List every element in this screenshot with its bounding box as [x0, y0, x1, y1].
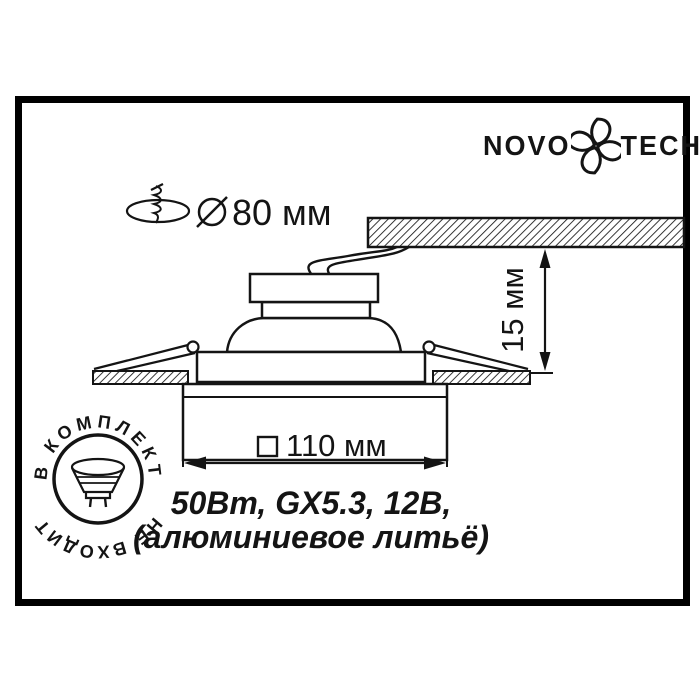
pivot-right [424, 342, 435, 353]
spec-line-1: 50Вт, GX5.3, 12В, [111, 486, 511, 520]
lamp-holder-block [250, 274, 378, 302]
page-canvas: { "page": { "background": "#ffffff", "in… [0, 0, 700, 700]
trim-width-label: 110 мм [286, 428, 387, 463]
cutout-diameter-label: 80 мм [232, 192, 332, 233]
spring-clip-left-lower [117, 353, 195, 371]
pivot-left [188, 342, 199, 353]
power-wires [308, 247, 409, 275]
fixture-body [94, 274, 528, 382]
ceiling-strip-right [433, 371, 530, 384]
ceiling-strip-left [93, 371, 188, 384]
spec-text: 50Вт, GX5.3, 12В, (алюминиевое литьё) [111, 486, 511, 554]
protrusion-height-label: 15 мм [495, 267, 530, 353]
screw-in-hole-icon [127, 184, 189, 223]
fixture-housing-dome [227, 318, 401, 352]
ceiling-slab [368, 218, 684, 247]
trim-ring [197, 352, 425, 382]
screw-thread [154, 186, 161, 223]
arrow-down [540, 352, 551, 371]
diameter-symbol-icon [197, 197, 227, 227]
technical-drawing: 80 мм 110 мм [0, 0, 700, 700]
arrow-up [540, 249, 551, 268]
depth-dimension: 15 мм [495, 249, 553, 373]
fixture-neck [262, 302, 370, 318]
spec-line-2: (алюминиевое литьё) [111, 520, 511, 554]
